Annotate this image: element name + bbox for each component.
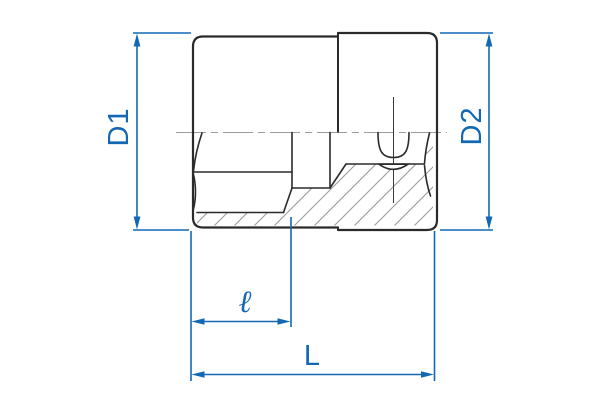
dimension-d1: D1 xyxy=(103,33,191,230)
dimension-l: L xyxy=(191,231,435,381)
hex-corner-arc-upper xyxy=(194,133,203,171)
drawing-canvas: D1 D2 ℓ L xyxy=(0,0,600,420)
l-label: L xyxy=(304,340,320,372)
d2-arrow-down-icon xyxy=(486,217,493,230)
dimension-ell: ℓ xyxy=(192,217,292,327)
dimension-d2: D2 xyxy=(440,33,493,230)
d2-arrow-up-icon xyxy=(486,34,493,47)
ell-arrow-right-icon xyxy=(278,318,291,325)
socket-dimension-diagram: D1 D2 ℓ L xyxy=(0,0,600,420)
d2-label: D2 xyxy=(456,106,488,145)
d1-arrow-up-icon xyxy=(134,34,141,47)
ell-label: ℓ xyxy=(239,284,252,320)
d1-label: D1 xyxy=(103,107,135,146)
ell-arrow-left-icon xyxy=(192,318,205,325)
l-arrow-left-icon xyxy=(192,371,205,378)
l-arrow-right-icon xyxy=(421,371,434,378)
d1-arrow-down-icon xyxy=(134,217,141,230)
